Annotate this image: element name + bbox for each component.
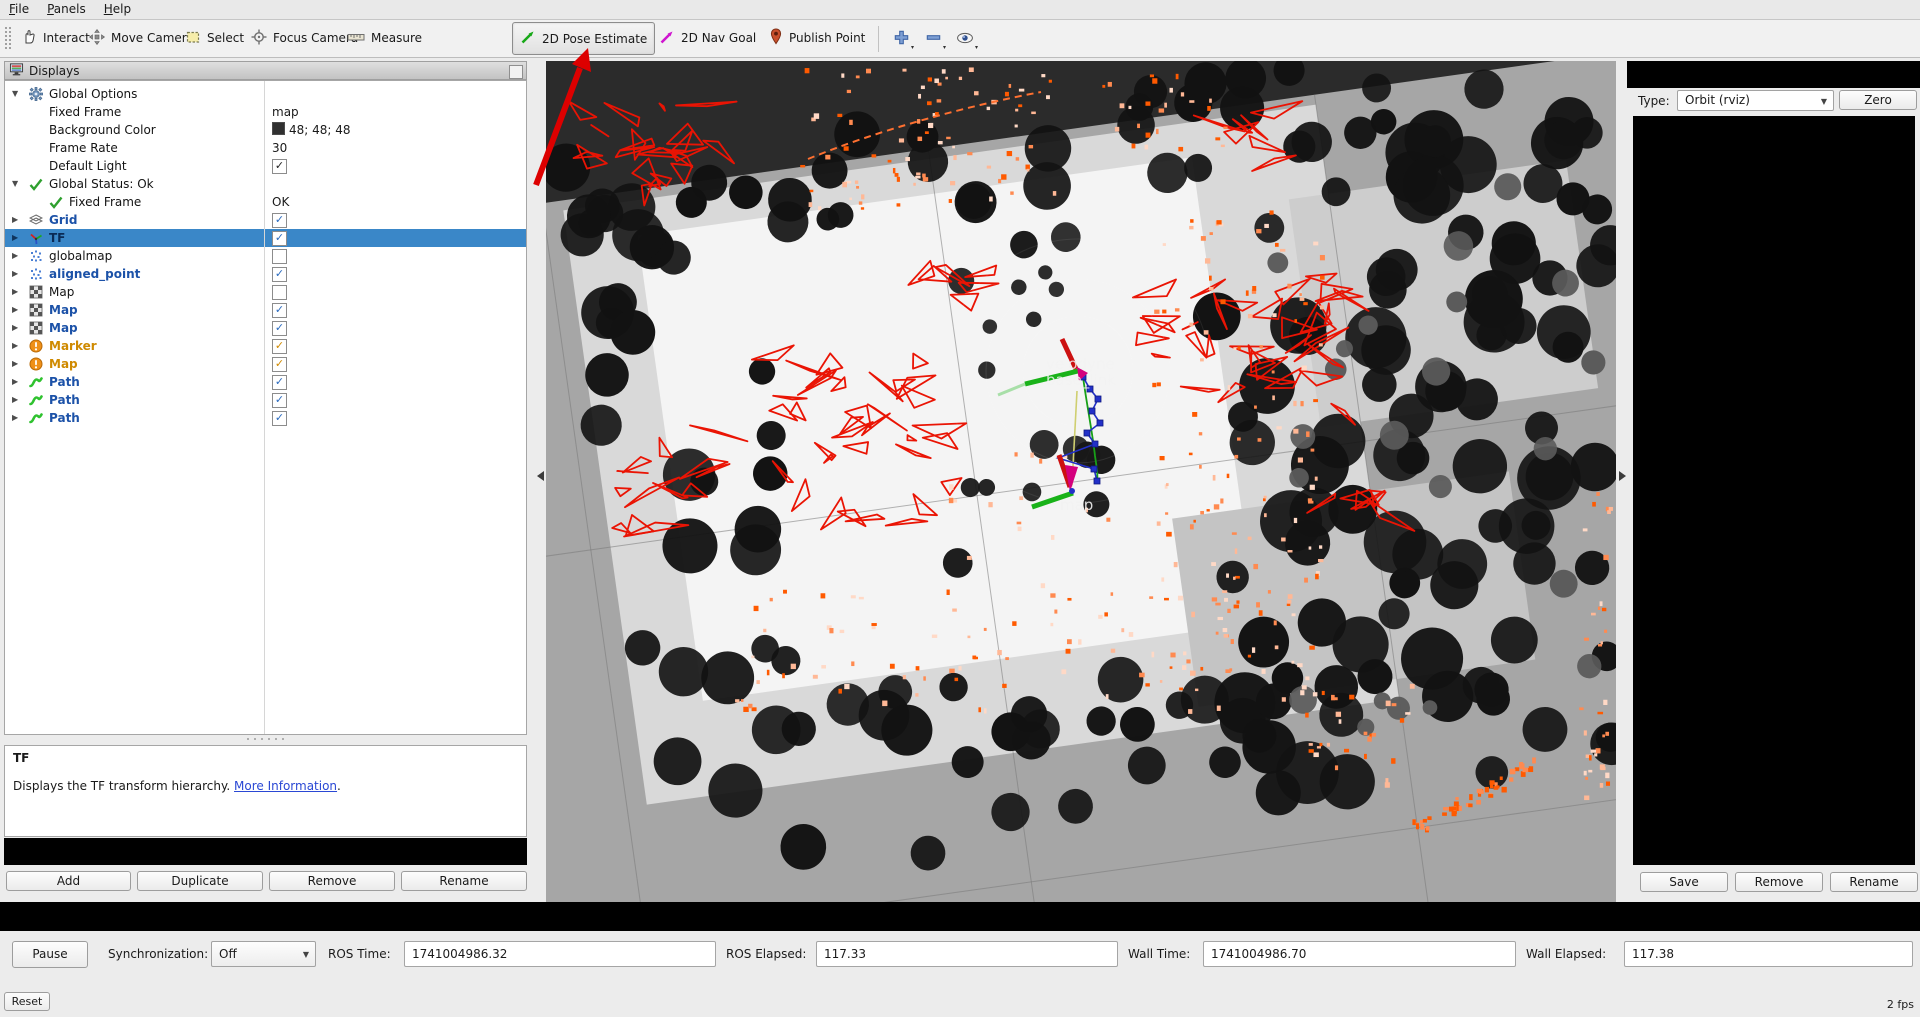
expand-triangle-icon[interactable]: ▶ <box>12 229 22 247</box>
description-title: TF <box>13 751 518 765</box>
display-row-marker[interactable]: ▶Marker✓ <box>5 337 526 355</box>
row-label: globalmap <box>49 247 112 265</box>
path-icon <box>29 375 43 389</box>
row-label: Frame Rate <box>49 139 118 157</box>
collapse-right-panel-arrow[interactable] <box>1619 471 1626 481</box>
row-label: Map <box>49 355 78 373</box>
warning-icon <box>29 339 43 353</box>
display-row-tf[interactable]: ▶TF✓ <box>5 229 526 247</box>
expand-triangle-icon[interactable]: ▶ <box>12 373 22 391</box>
menu-file[interactable]: File <box>0 0 38 19</box>
display-row-grid[interactable]: ▶Grid✓ <box>5 211 526 229</box>
property-value[interactable]: OK <box>272 193 289 211</box>
chevron-down-icon: ▼ <box>1821 91 1827 112</box>
views-list[interactable] <box>1633 116 1915 865</box>
display-row-background-color[interactable]: Background Color48; 48; 48 <box>5 121 526 139</box>
visibility-checkbox-checked[interactable]: ✓ <box>272 411 287 426</box>
panel-splitter-handle[interactable] <box>230 736 300 742</box>
row-label: Path <box>49 391 80 409</box>
visibility-checkbox-checked[interactable]: ✓ <box>272 339 287 354</box>
add-display-button[interactable]: Add <box>6 871 131 891</box>
row-label: TF <box>49 229 65 247</box>
visibility-checkbox-checked[interactable]: ✓ <box>272 213 287 228</box>
hand-icon <box>21 29 37 48</box>
displays-icon <box>9 62 24 79</box>
warning-icon <box>29 357 43 371</box>
map-icon <box>29 303 43 317</box>
focus-camera-icon <box>251 29 267 48</box>
path-icon <box>29 411 43 425</box>
add-tool-button[interactable]: ▾ <box>888 26 914 52</box>
render-scene: velodyne base_link map <box>546 61 1616 902</box>
displays-panel-title: Displays <box>29 64 79 78</box>
display-row-map[interactable]: ▶Map <box>5 283 526 301</box>
property-value[interactable]: map <box>272 103 299 121</box>
display-row-fixed-frame[interactable]: Fixed FrameOK <box>5 193 526 211</box>
color-swatch <box>272 122 285 135</box>
expand-triangle-icon[interactable]: ▶ <box>12 211 22 229</box>
property-value[interactable]: 48; 48; 48 <box>272 121 351 139</box>
wall-time-label: Wall Time: <box>1128 947 1190 961</box>
visibility-checkbox-checked[interactable]: ✓ <box>272 321 287 336</box>
pause-button[interactable]: Pause <box>12 941 88 968</box>
synchronization-label: Synchronization: <box>108 947 208 961</box>
collapse-left-panel-arrow[interactable] <box>537 471 544 481</box>
tool-2d-pose-estimate-button[interactable]: 2D Pose Estimate <box>512 22 655 55</box>
expand-triangle-icon[interactable]: ▶ <box>12 409 22 427</box>
display-row-global-status-ok[interactable]: ▼Global Status: Ok <box>5 175 526 193</box>
remove-display-button[interactable]: Remove <box>269 871 395 891</box>
eye-icon <box>956 31 974 48</box>
rename-view-button[interactable]: Rename <box>1830 872 1918 892</box>
check-icon <box>49 195 63 209</box>
toolbar-separator <box>878 26 879 52</box>
tf-axes-icon <box>29 231 43 245</box>
expand-triangle-icon[interactable]: ▶ <box>12 283 22 301</box>
tool-measure-button[interactable]: Measure <box>340 24 429 52</box>
display-row-path[interactable]: ▶Path✓ <box>5 391 526 409</box>
visibility-checkbox-checked[interactable]: ✓ <box>272 231 287 246</box>
displays-panel-header: Displays <box>4 61 527 80</box>
duplicate-display-button[interactable]: Duplicate <box>137 871 263 891</box>
magenta-arrow-icon <box>659 29 675 48</box>
expand-triangle-icon[interactable]: ▶ <box>12 301 22 319</box>
visibility-checkbox-checked[interactable]: ✓ <box>272 393 287 408</box>
view-type-dropdown[interactable]: Orbit (rviz)▼ <box>1677 90 1834 111</box>
fps-counter: 2 fps <box>1848 998 1914 1011</box>
tool-publish-point-button[interactable]: Publish Point <box>762 24 872 52</box>
zero-view-button[interactable]: Zero <box>1839 90 1917 110</box>
display-row-fixed-frame[interactable]: Fixed Framemap <box>5 103 526 121</box>
move-camera-icon <box>89 29 105 48</box>
row-label: Grid <box>49 211 77 229</box>
visibility-checkbox-checked[interactable]: ✓ <box>272 159 287 174</box>
display-row-frame-rate[interactable]: Frame Rate30 <box>5 139 526 157</box>
collapse-triangle-icon[interactable]: ▼ <box>12 85 22 103</box>
row-label: Map <box>49 301 78 319</box>
select-box-icon <box>185 29 201 48</box>
check-icon <box>29 177 43 191</box>
map-icon <box>29 285 43 299</box>
expand-triangle-icon[interactable]: ▶ <box>12 391 22 409</box>
grid-icon <box>29 213 43 227</box>
menu-panels[interactable]: Panels <box>38 0 95 19</box>
displays-panel-spacer <box>4 838 527 865</box>
visibility-checkbox-checked[interactable]: ✓ <box>272 303 287 318</box>
expand-triangle-icon[interactable]: ▶ <box>12 319 22 337</box>
display-row-global-options[interactable]: ▼Global Options <box>5 85 526 103</box>
chevron-down-icon: ▼ <box>303 942 309 968</box>
green-arrow-icon <box>520 29 536 48</box>
display-row-map[interactable]: ▶Map✓ <box>5 301 526 319</box>
display-row-globalmap[interactable]: ▶globalmap <box>5 247 526 265</box>
wall-time-field[interactable]: 1741004986.70 <box>1203 941 1516 967</box>
pointcloud-icon <box>29 249 43 263</box>
description-text: Displays the TF transform hierarchy. Mor… <box>13 779 518 793</box>
display-row-path[interactable]: ▶Path✓ <box>5 373 526 391</box>
toolbar-drag-handle[interactable] <box>4 26 11 51</box>
rename-display-button[interactable]: Rename <box>401 871 527 891</box>
expand-triangle-icon[interactable]: ▶ <box>12 247 22 265</box>
path-icon <box>29 393 43 407</box>
save-view-button[interactable]: Save <box>1640 872 1728 892</box>
chevron-down-icon: ▾ <box>911 45 914 51</box>
views-panel-top <box>1627 61 1920 88</box>
visibility-checkbox-checked[interactable]: ✓ <box>272 357 287 372</box>
display-row-default-light[interactable]: Default Light✓ <box>5 157 526 175</box>
display-description-panel: TF Displays the TF transform hierarchy. … <box>4 745 527 837</box>
display-row-map[interactable]: ▶Map✓ <box>5 355 526 373</box>
reset-button[interactable]: Reset <box>4 992 50 1011</box>
row-label: Fixed Frame <box>69 193 141 211</box>
chevron-down-icon: ▾ <box>975 45 978 51</box>
row-label: Map <box>49 319 78 337</box>
chevron-down-icon: ▾ <box>943 45 946 51</box>
tool-label: Measure <box>371 31 422 45</box>
tool-select-button[interactable]: Select <box>178 24 251 52</box>
minus-icon <box>925 29 942 49</box>
displays-tree: ▼Global OptionsFixed FramemapBackground … <box>4 80 527 735</box>
toolbar: InteractMove CameraSelectFocus CameraMea… <box>0 20 1920 58</box>
menu-bar: FilePanelsHelp <box>0 0 1920 20</box>
tool-visibility-button[interactable]: ▾ <box>952 26 978 52</box>
property-value[interactable]: 30 <box>272 139 287 157</box>
row-label: Path <box>49 409 80 427</box>
map-icon <box>29 321 43 335</box>
ros-time-field[interactable]: 1741004986.32 <box>404 941 716 967</box>
synchronization-dropdown[interactable]: Off▼ <box>211 941 316 967</box>
rviz-window: { "menu": {"items": ["File", "Panels", "… <box>0 0 1920 1017</box>
collapse-triangle-icon[interactable]: ▼ <box>12 175 22 193</box>
row-label: Fixed Frame <box>49 103 121 121</box>
row-label: Path <box>49 373 80 391</box>
visibility-checkbox-checked[interactable]: ✓ <box>272 267 287 282</box>
visibility-checkbox-unchecked[interactable] <box>272 249 287 264</box>
wall-elapsed-field[interactable]: 117.38 <box>1624 941 1913 967</box>
expand-triangle-icon[interactable]: ▶ <box>12 265 22 283</box>
expand-triangle-icon[interactable]: ▶ <box>12 337 22 355</box>
row-label: Marker <box>49 337 97 355</box>
row-label: Default Light <box>49 157 127 175</box>
row-label: Global Status: Ok <box>49 175 154 193</box>
tool-label: 2D Pose Estimate <box>542 32 647 46</box>
plus-icon <box>893 29 910 49</box>
gear-icon <box>29 87 43 101</box>
expand-triangle-icon[interactable]: ▶ <box>12 355 22 373</box>
row-label: aligned_point <box>49 265 140 283</box>
tool-2d-nav-goal-button[interactable]: 2D Nav Goal <box>652 24 763 52</box>
map-pin-icon <box>769 28 783 48</box>
row-label: Global Options <box>49 85 137 103</box>
pointcloud-icon <box>29 267 43 281</box>
panel-float-button[interactable] <box>509 65 523 79</box>
time-panel: Pause Synchronization: Off▼ ROS Time:174… <box>0 931 1920 1017</box>
visibility-checkbox-checked[interactable]: ✓ <box>272 375 287 390</box>
tool-label: Select <box>207 31 244 45</box>
display-row-map[interactable]: ▶Map✓ <box>5 319 526 337</box>
tool-label: 2D Nav Goal <box>681 31 756 45</box>
tool-label: Publish Point <box>789 31 865 45</box>
ros-elapsed-field[interactable]: 117.33 <box>816 941 1118 967</box>
view-type-label: Type: <box>1638 94 1670 108</box>
ros-time-label: ROS Time: <box>328 947 391 961</box>
more-information-link[interactable]: More Information <box>234 779 337 793</box>
views-panel: Type: Orbit (rviz)▼ Zero SaveRemoveRenam… <box>1627 61 1920 902</box>
row-label: Map <box>49 283 74 301</box>
row-label: Background Color <box>49 121 156 139</box>
bottom-separator-strip <box>0 902 1920 931</box>
ros-elapsed-label: ROS Elapsed: <box>726 947 806 961</box>
3d-view-canvas[interactable]: velodyne base_link map <box>546 61 1616 902</box>
display-row-aligned-point[interactable]: ▶aligned_point✓ <box>5 265 526 283</box>
display-row-path[interactable]: ▶Path✓ <box>5 409 526 427</box>
frame-label-base-link: base_link <box>1046 371 1116 390</box>
frame-label-map: map <box>1060 496 1093 514</box>
visibility-checkbox-unchecked[interactable] <box>272 285 287 300</box>
ruler-icon <box>347 29 365 48</box>
menu-help[interactable]: Help <box>95 0 140 19</box>
remove-view-button[interactable]: Remove <box>1735 872 1823 892</box>
remove-tool-button[interactable]: ▾ <box>920 26 946 52</box>
wall-elapsed-label: Wall Elapsed: <box>1526 947 1606 961</box>
